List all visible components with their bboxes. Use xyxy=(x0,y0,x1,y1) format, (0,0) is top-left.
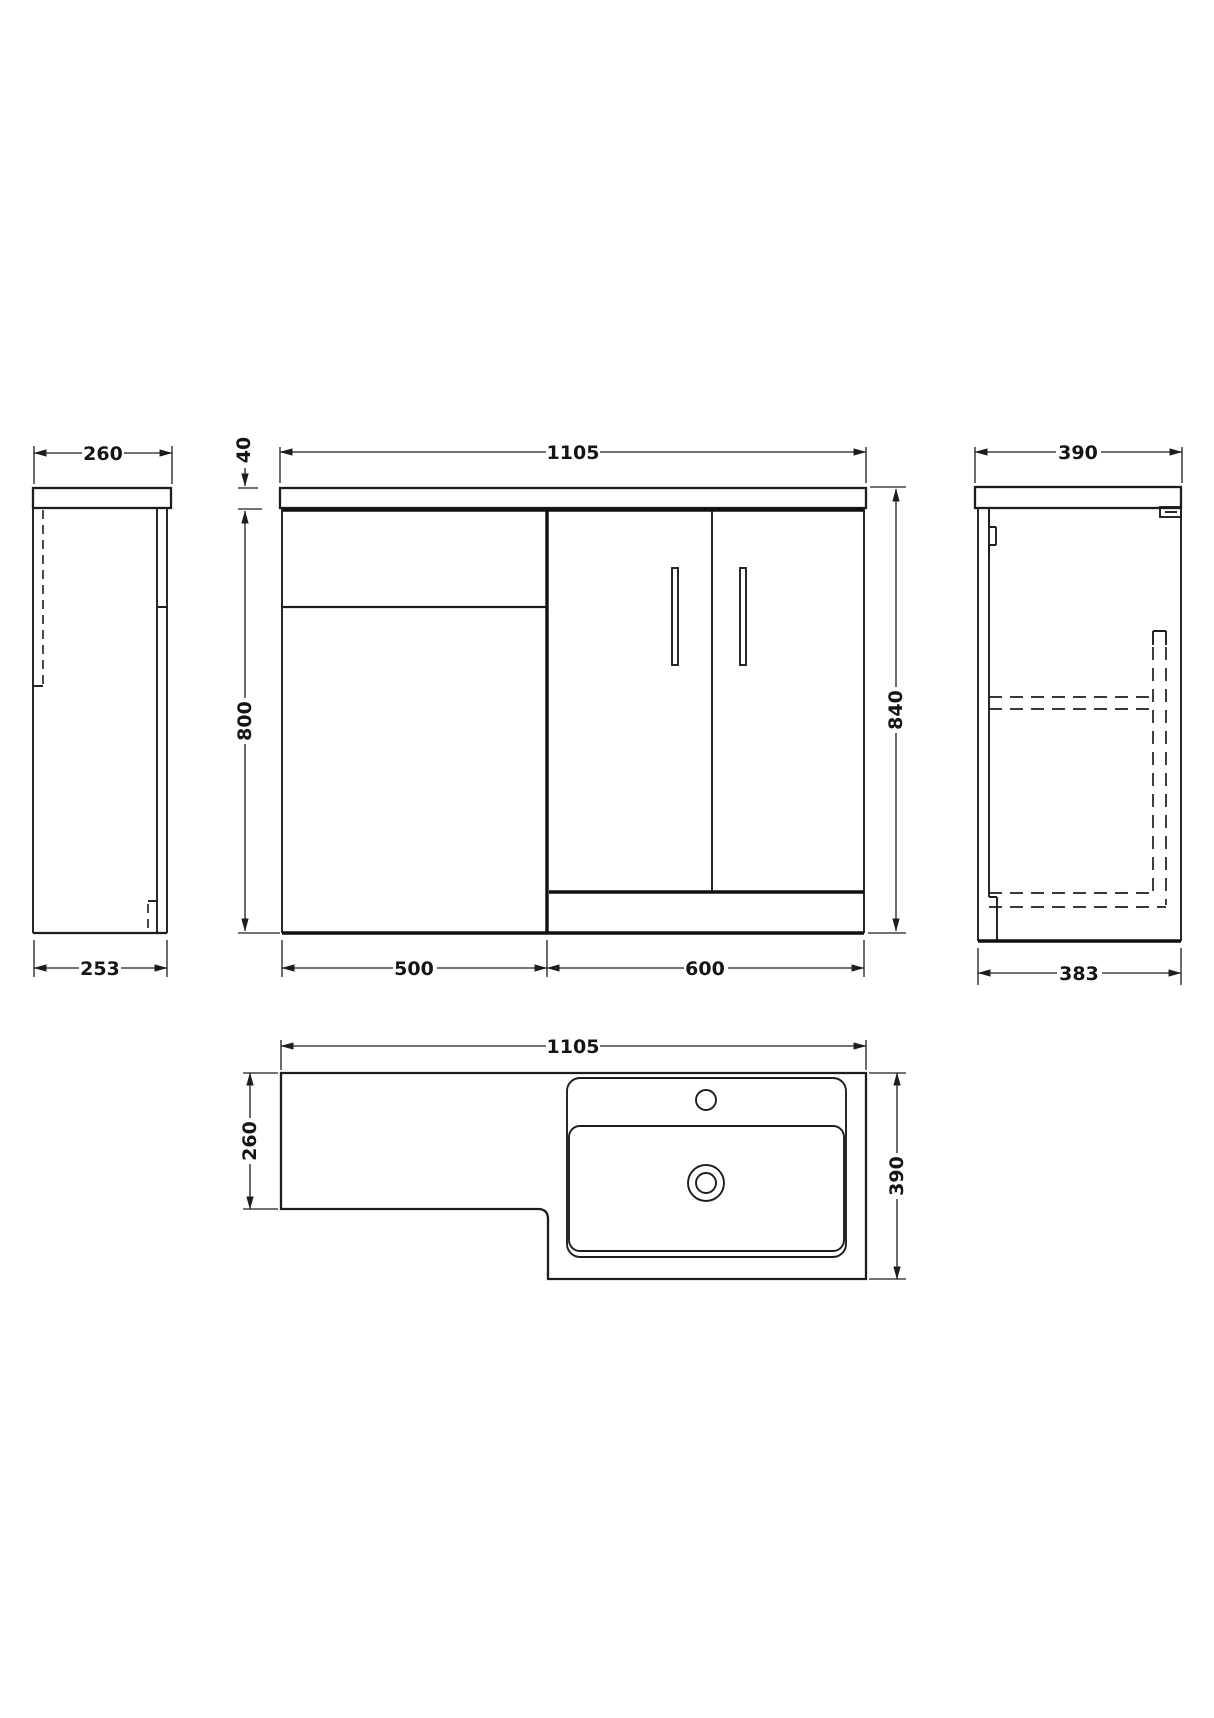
hidden-shelf xyxy=(989,697,1153,709)
dim-plan-wc-depth: 260 xyxy=(238,1073,278,1209)
dim-label: 40 xyxy=(233,437,255,463)
dim-label: 500 xyxy=(394,958,434,980)
dim-cabinet-height: 800 xyxy=(233,511,280,933)
dim-right-depth-bottom: 383 xyxy=(978,948,1181,985)
dim-label: 253 xyxy=(80,958,120,980)
waste-inner xyxy=(696,1173,716,1193)
left-side-view: 260 253 xyxy=(33,442,172,980)
extension-lines xyxy=(238,488,262,509)
dim-label-group: 800 xyxy=(233,698,256,744)
dim-label: 1105 xyxy=(547,442,600,464)
hidden-bottom-shelf xyxy=(989,893,1166,907)
door-handle-right xyxy=(740,568,746,665)
carcass-outline xyxy=(33,508,157,933)
plinth-step xyxy=(989,897,997,941)
extension-lines xyxy=(282,940,864,977)
dim-left-width-top: 260 xyxy=(34,442,172,484)
dim-left-width-bottom: 253 xyxy=(34,940,167,980)
dim-overall-height: 840 xyxy=(868,487,907,933)
plan-view: 1105 260 390 xyxy=(238,1035,908,1279)
dim-right-depth-top: 390 xyxy=(975,441,1182,483)
dim-vanity-width: 600 xyxy=(547,957,864,980)
tap-hole xyxy=(696,1090,716,1110)
dim-label: 1105 xyxy=(547,1036,600,1058)
dim-label: 260 xyxy=(239,1121,261,1161)
dim-worktop-thickness: 40 xyxy=(232,432,262,509)
worktop-side-right xyxy=(975,487,1181,508)
dim-label: 260 xyxy=(83,443,123,465)
door-panel-side xyxy=(978,508,989,941)
vanity-unit-technical-drawing: 260 253 1105 xyxy=(0,0,1214,1718)
upright-hidden xyxy=(1153,647,1166,905)
dim-wc-width: 500 xyxy=(282,940,864,980)
dim-label: 800 xyxy=(234,701,256,741)
technical-drawing-page: 260 253 1105 xyxy=(0,0,1214,1718)
waste-outer xyxy=(688,1165,724,1201)
dim-label: 383 xyxy=(1059,963,1099,985)
hinge-detail xyxy=(989,510,996,556)
dim-front-overall-width: 1105 xyxy=(280,441,866,483)
dim-label-group: 40 xyxy=(232,432,255,468)
dim-plan-overall-depth: 390 xyxy=(869,1073,908,1279)
dim-plan-overall-width: 1105 xyxy=(281,1035,866,1070)
dim-label-group: 840 xyxy=(884,687,907,733)
dim-label-group: 260 xyxy=(238,1118,261,1164)
worktop-side xyxy=(33,488,171,508)
worktop-front xyxy=(280,488,866,508)
dim-label: 390 xyxy=(1058,442,1098,464)
basin-rim xyxy=(567,1078,846,1257)
dim-label: 600 xyxy=(685,958,725,980)
front-view: 1105 40 800 840 xyxy=(232,432,907,980)
upright-cap xyxy=(1153,631,1166,645)
basin-bowl xyxy=(569,1126,844,1251)
dim-label: 840 xyxy=(885,690,907,730)
dim-label-group: 390 xyxy=(885,1153,908,1199)
cabinet-sides xyxy=(282,509,864,933)
door-handle-left xyxy=(672,568,678,665)
right-side-view: 390 383 xyxy=(975,441,1182,985)
door-panel-side xyxy=(157,508,167,933)
dim-label: 390 xyxy=(886,1156,908,1196)
